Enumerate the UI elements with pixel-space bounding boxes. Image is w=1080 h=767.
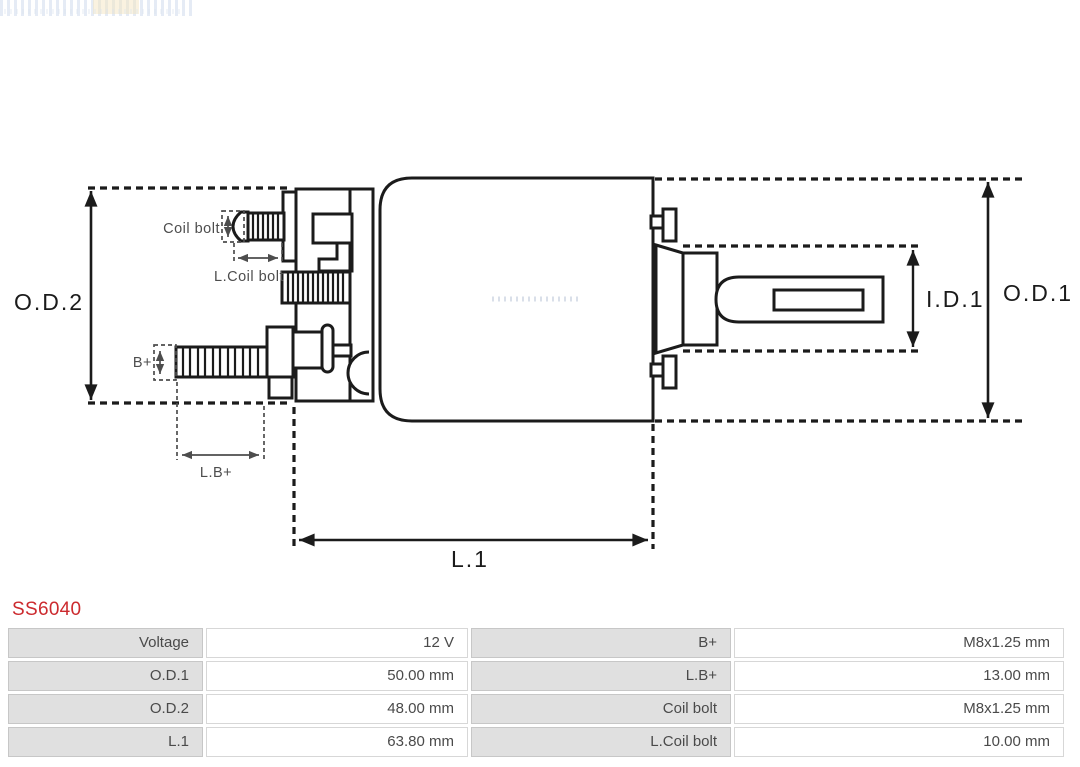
l-b-plus-label: L.B+ (200, 465, 232, 481)
plunger-block (683, 253, 717, 345)
spec-label: Coil bolt (471, 694, 731, 724)
b-plus-dimension (154, 345, 176, 380)
l-coil-bolt-dimension (234, 243, 282, 263)
coil-bolt-label: Coil bolt (163, 221, 220, 237)
terminal-stud-bottom (651, 364, 663, 376)
terminal-stud-top (651, 216, 663, 228)
part-code: SS6040 (12, 599, 81, 621)
l1-label: L.1 (451, 546, 489, 572)
coil-bolt (233, 212, 248, 241)
spec-value: 10.00 mm (734, 727, 1064, 757)
spec-label: O.D.1 (8, 661, 203, 691)
l-b-plus-dimension (177, 382, 264, 460)
spec-value: 13.00 mm (734, 661, 1064, 691)
spec-value: 50.00 mm (206, 661, 468, 691)
spec-value: 63.80 mm (206, 727, 468, 757)
id1-label: I.D.1 (926, 286, 985, 312)
spec-label: L.B+ (471, 661, 731, 691)
cap-pin (322, 325, 333, 372)
od2-label: O.D.2 (14, 289, 84, 315)
spec-label: L.Coil bolt (471, 727, 731, 757)
spec-value: M8x1.25 mm (734, 628, 1064, 658)
spec-label: B+ (471, 628, 731, 658)
plunger-collar (656, 245, 683, 353)
l1-dimension (294, 407, 653, 549)
l-coil-bolt-label: L.Coil bolt (214, 269, 284, 285)
od1-label: O.D.1 (1003, 280, 1073, 306)
spec-value: M8x1.25 mm (734, 694, 1064, 724)
spec-label: L.1 (8, 727, 203, 757)
plunger-slot (774, 290, 863, 310)
spec-value: 12 V (206, 628, 468, 658)
spec-table: Voltage 12 V B+ M8x1.25 mm O.D.1 50.00 m… (8, 628, 1064, 757)
b-plus-label: B+ (133, 355, 152, 371)
spec-label: Voltage (8, 628, 203, 658)
spec-label: O.D.2 (8, 694, 203, 724)
solenoid-technical-drawing: O.D.2 O.D.1 I.D.1 L.1 (0, 0, 1080, 595)
b-plus-nut (267, 327, 293, 377)
spec-value: 48.00 mm (206, 694, 468, 724)
